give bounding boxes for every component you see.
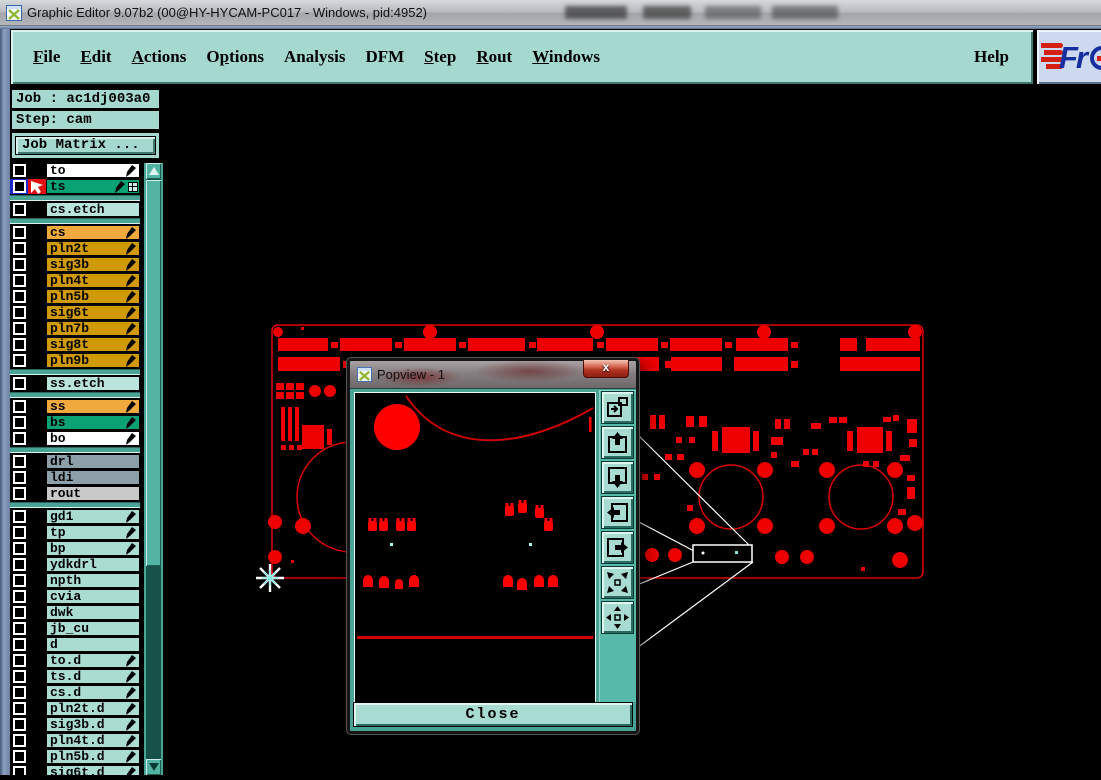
checkbox-icon <box>13 558 26 571</box>
layer-row-ldi: ldi <box>10 470 140 485</box>
layer-pen-icon <box>125 339 136 351</box>
layer-group-separator <box>10 502 140 508</box>
triangle-down-icon <box>149 763 159 771</box>
layer-group-separator <box>10 369 140 375</box>
layer-label-bs[interactable]: bs <box>46 415 140 430</box>
layer-checkbox-sig6t[interactable] <box>10 305 28 320</box>
layer-pen-icon <box>125 165 136 177</box>
layer-marker-cell <box>28 163 46 178</box>
popview-titlebar[interactable]: Popview - 1 x <box>350 361 636 389</box>
layer-row-tp: tp <box>10 525 140 540</box>
layer-checkbox-cs[interactable] <box>10 225 28 240</box>
layer-checkbox-pln2t[interactable] <box>10 241 28 256</box>
layer-pen-icon <box>125 291 136 303</box>
layer-marker-cell <box>28 765 46 775</box>
pan-down-icon <box>605 465 630 490</box>
layer-label-cs[interactable]: cs <box>46 225 140 240</box>
layer-row-pln2t: pln2t <box>10 241 140 256</box>
layer-label-cvia[interactable]: cvia <box>46 589 140 604</box>
layer-checkbox-bs[interactable] <box>10 415 28 430</box>
popview-title: Popview - 1 <box>377 367 445 382</box>
menu-windows[interactable]: Windows <box>522 47 610 67</box>
checkbox-icon <box>13 377 26 390</box>
checkbox-icon <box>13 242 26 255</box>
layer-row-d: d <box>10 637 140 652</box>
layer-checkbox-pln5b[interactable] <box>10 289 28 304</box>
layer-marker-cell <box>28 289 46 304</box>
popview-canvas[interactable] <box>354 392 596 704</box>
checkbox-icon <box>13 416 26 429</box>
pan-left-button[interactable] <box>601 496 634 529</box>
scrollbar-thumb[interactable] <box>146 180 161 566</box>
checkbox-icon <box>13 455 26 468</box>
layer-grid-icon <box>128 182 138 192</box>
popview-window: Popview - 1 x <box>347 358 639 734</box>
layer-group-separator <box>10 392 140 398</box>
layer-pen-icon <box>125 687 136 699</box>
layer-checkbox-d[interactable] <box>10 637 28 652</box>
checkbox-icon <box>13 471 26 484</box>
layer-marker-cell <box>28 470 46 485</box>
checkbox-icon <box>13 654 26 667</box>
popview-icon <box>357 367 372 382</box>
layer-checkbox-pln7b[interactable] <box>10 321 28 336</box>
popview-close-button[interactable]: Close <box>353 702 633 727</box>
layer-marker-cell <box>28 637 46 652</box>
layer-row-pln2t.d: pln2t.d <box>10 701 140 716</box>
layer-marker-cell <box>28 321 46 336</box>
pan-up-icon <box>605 430 630 455</box>
checkbox-icon <box>13 606 26 619</box>
layer-marker-cell <box>28 486 46 501</box>
layer-marker-cell <box>28 717 46 732</box>
checkbox-icon <box>13 322 26 335</box>
layer-checkbox-cs.etch[interactable] <box>10 202 28 217</box>
layer-pen-icon <box>125 543 136 555</box>
checkbox-icon <box>13 574 26 587</box>
layer-label-ts.d[interactable]: ts.d <box>46 669 140 684</box>
layer-marker-cell <box>28 589 46 604</box>
checkbox-icon <box>13 510 26 523</box>
layer-label-bo[interactable]: bo <box>46 431 140 446</box>
scroll-down-button[interactable] <box>146 759 161 775</box>
layer-label-jb_cu[interactable]: jb_cu <box>46 621 140 636</box>
layer-marker-cell <box>28 701 46 716</box>
layer-marker-cell <box>28 685 46 700</box>
layer-pen-icon <box>125 735 136 747</box>
layer-marker-cell <box>28 509 46 524</box>
layer-label-ss.etch[interactable]: ss.etch <box>46 376 140 391</box>
checkbox-icon <box>13 432 26 445</box>
layer-label-cs.etch[interactable]: cs.etch <box>46 202 140 217</box>
layer-label-pln5b[interactable]: pln5b <box>46 289 140 304</box>
layer-row-sig3b: sig3b <box>10 257 140 272</box>
layer-row-pln5b: pln5b <box>10 289 140 304</box>
checkbox-icon <box>13 338 26 351</box>
layer-group-separator <box>10 447 140 453</box>
pan-right-icon <box>605 535 630 560</box>
layer-label-ts[interactable]: ts <box>46 179 140 194</box>
menu-file[interactable]: File <box>23 47 70 67</box>
menu-analysis[interactable]: Analysis <box>274 47 355 67</box>
layer-pen-icon <box>125 275 136 287</box>
sidebar: Job : ac1dj003a0 Step: cam Job Matrix ..… <box>10 85 163 775</box>
layer-label-d[interactable]: d <box>46 637 140 652</box>
layer-marker-cell <box>28 337 46 352</box>
layer-pen-icon <box>125 751 136 763</box>
layer-row-gd1: gd1 <box>10 509 140 524</box>
checkbox-icon <box>13 622 26 635</box>
layer-checkbox-cs.d[interactable] <box>10 685 28 700</box>
job-label: Job : ac1dj003a0 <box>10 88 161 110</box>
layer-row-jb_cu: jb_cu <box>10 621 140 636</box>
menu-dfm[interactable]: DFM <box>355 47 414 67</box>
layer-label-sig6t.d[interactable]: sig6t.d <box>46 765 140 775</box>
logo-text: Fr <box>1059 40 1086 76</box>
redacted-text-block <box>705 6 761 19</box>
checkbox-icon <box>13 542 26 555</box>
layer-checkbox-sig3b.d[interactable] <box>10 717 28 732</box>
layer-marker-cell <box>28 557 46 572</box>
layer-marker-cell <box>28 415 46 430</box>
layer-checkbox-sig6t.d[interactable] <box>10 765 28 775</box>
layer-row-cvia: cvia <box>10 589 140 604</box>
layer-label-tp[interactable]: tp <box>46 525 140 540</box>
layer-label-pln5b.d[interactable]: pln5b.d <box>46 749 140 764</box>
nw-arrow-icon <box>28 179 46 194</box>
layer-list: totscs.etchcspln2tsig3bpln4tpln5bsig6tpl… <box>10 163 140 775</box>
layer-label-drl[interactable]: drl <box>46 454 140 469</box>
checkbox-icon <box>13 718 26 731</box>
layer-row-to.d: to.d <box>10 653 140 668</box>
layer-marker-cell <box>28 273 46 288</box>
main-titlebar[interactable]: Graphic Editor 9.07b2 (00@HY-HYCAM-PC017… <box>0 0 1101 26</box>
layer-row-cs: cs <box>10 225 140 240</box>
checkbox-icon <box>13 226 26 239</box>
layer-pen-icon <box>125 703 136 715</box>
layer-label-sig3b[interactable]: sig3b <box>46 257 140 272</box>
duplicate-view-icon <box>605 395 630 420</box>
popview-close-x-button[interactable]: x <box>583 360 629 378</box>
layer-checkbox-rout[interactable] <box>10 486 28 501</box>
layer-label-dwk[interactable]: dwk <box>46 605 140 620</box>
layer-row-ydkdrl: ydkdrl <box>10 557 140 572</box>
layer-row-drl: drl <box>10 454 140 469</box>
checkbox-icon <box>13 526 26 539</box>
layer-checkbox-ts.d[interactable] <box>10 669 28 684</box>
layer-row-pln5b.d: pln5b.d <box>10 749 140 764</box>
window-title: Graphic Editor 9.07b2 (00@HY-HYCAM-PC017… <box>27 5 427 20</box>
checkbox-icon <box>13 686 26 699</box>
layer-marker-cell <box>28 653 46 668</box>
layer-label-pln4t.d[interactable]: pln4t.d <box>46 733 140 748</box>
layer-marker-cell <box>28 573 46 588</box>
layer-pen-icon <box>125 671 136 683</box>
layer-label-ss[interactable]: ss <box>46 399 140 414</box>
layer-checkbox-pln4t.d[interactable] <box>10 733 28 748</box>
layer-group-separator <box>10 218 140 224</box>
step-label: Step: cam <box>10 109 161 131</box>
layer-label-cs.d[interactable]: cs.d <box>46 685 140 700</box>
checkbox-icon <box>13 354 26 367</box>
layer-checkbox-ss.etch[interactable] <box>10 376 28 391</box>
checkbox-icon <box>13 638 26 651</box>
layer-checkbox-cvia[interactable] <box>10 589 28 604</box>
checkbox-icon <box>13 766 26 775</box>
layer-row-cs.etch: cs.etch <box>10 202 140 217</box>
layer-marker-cell <box>28 454 46 469</box>
layer-checkbox-ss[interactable] <box>10 399 28 414</box>
menu-edit[interactable]: Edit <box>70 47 121 67</box>
pan-right-button[interactable] <box>601 531 634 564</box>
checkbox-icon <box>13 180 26 193</box>
layer-label-sig6t[interactable]: sig6t <box>46 305 140 320</box>
layer-row-to: to <box>10 163 140 178</box>
layer-checkbox-to[interactable] <box>10 163 28 178</box>
layer-checkbox-to.d[interactable] <box>10 653 28 668</box>
layer-label-pln2t[interactable]: pln2t <box>46 241 140 256</box>
layer-pen-icon <box>125 259 136 271</box>
arrows-outward-icon <box>605 605 630 630</box>
layer-label-pln7b[interactable]: pln7b <box>46 321 140 336</box>
layer-pen-icon <box>125 243 136 255</box>
layer-pen-icon <box>125 227 136 239</box>
checkbox-icon <box>13 670 26 683</box>
checkbox-icon <box>13 750 26 763</box>
layer-label-ldi[interactable]: ldi <box>46 470 140 485</box>
triangle-up-icon <box>149 167 159 175</box>
redacted-text-block <box>643 6 691 19</box>
layer-marker-cell <box>28 431 46 446</box>
layer-label-gd1[interactable]: gd1 <box>46 509 140 524</box>
menu-step[interactable]: Step <box>414 47 466 67</box>
layer-pen-icon <box>125 323 136 335</box>
job-matrix-panel: Job Matrix ... <box>10 131 161 160</box>
layer-checkbox-pln4t[interactable] <box>10 273 28 288</box>
layer-checkbox-gd1[interactable] <box>10 509 28 524</box>
layer-pen-icon <box>125 401 136 413</box>
layer-label-to[interactable]: to <box>46 163 140 178</box>
checkbox-icon <box>13 258 26 271</box>
redacted-text-block <box>565 6 627 19</box>
layer-checkbox-pln9b[interactable] <box>10 353 28 368</box>
layer-checkbox-bo[interactable] <box>10 431 28 446</box>
duplicate-view-button[interactable] <box>601 391 634 424</box>
menubar: FileEditActionsOptionsAnalysisDFMStepRou… <box>10 29 1034 85</box>
pan-left-icon <box>605 500 630 525</box>
menu-help[interactable]: Help <box>964 47 1019 67</box>
checkbox-icon <box>13 306 26 319</box>
layer-checkbox-pln2t.d[interactable] <box>10 701 28 716</box>
layer-label-sig8t[interactable]: sig8t <box>46 337 140 352</box>
layer-row-ss: ss <box>10 399 140 414</box>
layer-marker-cell <box>28 525 46 540</box>
layer-pen-icon <box>125 511 136 523</box>
pan-up-button[interactable] <box>601 426 634 459</box>
layer-label-sig3b.d[interactable]: sig3b.d <box>46 717 140 732</box>
layer-checkbox-jb_cu[interactable] <box>10 621 28 636</box>
layer-label-rout[interactable]: rout <box>46 486 140 501</box>
checkbox-icon <box>13 290 26 303</box>
layer-label-to.d[interactable]: to.d <box>46 653 140 668</box>
popview-artwork <box>355 393 595 703</box>
checkbox-icon <box>13 702 26 715</box>
layer-marker-cell <box>28 241 46 256</box>
layer-marker-cell <box>28 399 46 414</box>
layer-row-sig3b.d: sig3b.d <box>10 717 140 732</box>
layer-checkbox-tp[interactable] <box>10 525 28 540</box>
layer-checkbox-pln5b.d[interactable] <box>10 749 28 764</box>
scroll-up-button[interactable] <box>146 163 161 179</box>
layer-label-npth[interactable]: npth <box>46 573 140 588</box>
layer-marker-cell <box>28 669 46 684</box>
layer-marker-cell <box>28 605 46 620</box>
layer-pen-icon <box>125 719 136 731</box>
layer-marker-cell <box>28 749 46 764</box>
redacted-text-block <box>772 6 838 19</box>
layer-row-ts: ts <box>10 179 140 194</box>
layer-row-bs: bs <box>10 415 140 430</box>
layer-marker-cell <box>28 376 46 391</box>
layer-pen-icon <box>114 181 125 193</box>
layer-row-bp: bp <box>10 541 140 556</box>
layer-row-pln4t.d: pln4t.d <box>10 733 140 748</box>
frontline-logo: Fr <box>1036 29 1101 85</box>
layer-label-ydkdrl[interactable]: ydkdrl <box>46 557 140 572</box>
layer-pen-icon <box>125 527 136 539</box>
arrows-inward-icon <box>605 570 630 595</box>
layer-checkbox-ts[interactable] <box>10 179 28 194</box>
layer-label-pln2t.d[interactable]: pln2t.d <box>46 701 140 716</box>
layer-row-ss.etch: ss.etch <box>10 376 140 391</box>
popview-toolbar <box>599 390 636 702</box>
layer-checkbox-ydkdrl[interactable] <box>10 557 28 572</box>
layer-marker-cell <box>28 733 46 748</box>
layer-group-separator <box>10 195 140 201</box>
zoom-contract-button[interactable] <box>601 566 634 599</box>
layer-marker-cell <box>28 202 46 217</box>
zoom-expand-button[interactable] <box>601 601 634 634</box>
layer-row-sig6t.d: sig6t.d <box>10 765 140 775</box>
layer-pen-icon <box>125 433 136 445</box>
layer-row-pln4t: pln4t <box>10 273 140 288</box>
logo-circle <box>1090 46 1101 70</box>
layer-pen-icon <box>125 307 136 319</box>
checkbox-icon <box>13 734 26 747</box>
layer-pen-icon <box>125 355 136 367</box>
layer-scrollbar[interactable] <box>144 163 163 775</box>
menu-rout[interactable]: Rout <box>466 47 522 67</box>
checkbox-icon <box>13 274 26 287</box>
menu-actions[interactable]: Actions <box>122 47 197 67</box>
layer-checkbox-drl[interactable] <box>10 454 28 469</box>
checkbox-icon <box>13 590 26 603</box>
layer-pen-icon <box>125 655 136 667</box>
layer-marker-cell <box>28 353 46 368</box>
layer-checkbox-sig8t[interactable] <box>10 337 28 352</box>
pan-down-button[interactable] <box>601 461 634 494</box>
layer-label-pln9b[interactable]: pln9b <box>46 353 140 368</box>
layer-marker-cell <box>28 225 46 240</box>
layer-label-pln4t[interactable]: pln4t <box>46 273 140 288</box>
layer-row-ts.d: ts.d <box>10 669 140 684</box>
window-frame-left <box>0 29 10 775</box>
layer-checkbox-sig3b[interactable] <box>10 257 28 272</box>
layer-row-pln7b: pln7b <box>10 321 140 336</box>
layer-label-bp[interactable]: bp <box>46 541 140 556</box>
layer-marker-cell <box>28 305 46 320</box>
layer-marker-cell <box>28 541 46 556</box>
checkbox-icon <box>13 164 26 177</box>
layer-row-dwk: dwk <box>10 605 140 620</box>
checkbox-icon <box>13 487 26 500</box>
job-matrix-button[interactable]: Job Matrix ... <box>15 136 156 155</box>
layer-row-npth: npth <box>10 573 140 588</box>
layer-row-rout: rout <box>10 486 140 501</box>
layer-checkbox-npth[interactable] <box>10 573 28 588</box>
app-icon <box>6 5 22 21</box>
menu-options[interactable]: Options <box>196 47 274 67</box>
layer-pen-icon <box>125 767 136 776</box>
layer-row-sig8t: sig8t <box>10 337 140 352</box>
layer-marker-cell <box>28 257 46 272</box>
layer-row-cs.d: cs.d <box>10 685 140 700</box>
layer-checkbox-ldi[interactable] <box>10 470 28 485</box>
layer-row-sig6t: sig6t <box>10 305 140 320</box>
layer-pen-icon <box>125 417 136 429</box>
checkbox-icon <box>13 203 26 216</box>
layer-row-pln9b: pln9b <box>10 353 140 368</box>
layer-checkbox-bp[interactable] <box>10 541 28 556</box>
checkbox-icon <box>13 400 26 413</box>
layer-marker-cell <box>28 621 46 636</box>
active-layer-arrow <box>28 179 46 194</box>
layer-row-bo: bo <box>10 431 140 446</box>
layer-checkbox-dwk[interactable] <box>10 605 28 620</box>
